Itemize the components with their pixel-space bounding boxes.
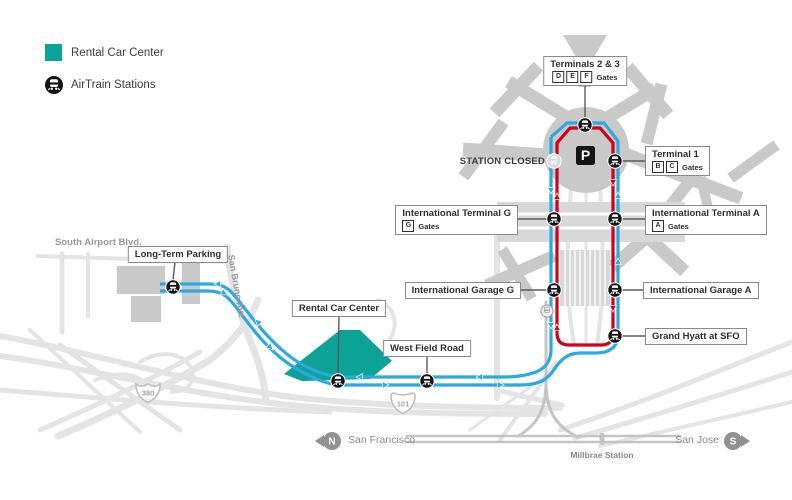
- label-international-garage-a: International Garage A: [643, 282, 759, 299]
- label-title: International Terminal A: [652, 208, 760, 219]
- label-title: International Garage A: [650, 285, 752, 296]
- gates-row: D E F Gates: [550, 71, 620, 83]
- station-marker-terminals-2-3: [578, 118, 592, 132]
- south-badge: S: [724, 432, 750, 450]
- gate-chip-c: C: [666, 161, 678, 173]
- label-terminals-2-3: Terminals 2 & 3 D E F Gates: [543, 56, 627, 86]
- label-title: Long-Term Parking: [135, 249, 221, 260]
- rental-car-swatch: [45, 44, 62, 61]
- svg-text:101: 101: [397, 400, 410, 409]
- label-title: Rental Car Center: [299, 303, 379, 314]
- label-rental-car-center: Rental Car Center: [292, 300, 386, 317]
- millbrae-station-dot: [600, 433, 605, 445]
- label-title: Terminals 2 & 3: [550, 59, 620, 70]
- label-title: International Terminal G: [402, 208, 511, 219]
- gates-word: Gates: [597, 73, 618, 82]
- terminal-buildings: [117, 35, 772, 322]
- label-grand-hyatt: Grand Hyatt at SFO: [645, 328, 747, 345]
- gates-word: Gates: [682, 163, 703, 172]
- label-international-terminal-a: International Terminal A A Gates: [645, 205, 767, 235]
- gates-row: A Gates: [652, 220, 760, 232]
- legend: Rental Car Center AirTrain Stations: [45, 44, 164, 109]
- station-marker-closed: [547, 154, 561, 168]
- station-marker-intl-terminal-a: [608, 212, 622, 226]
- svg-text:380: 380: [142, 389, 155, 398]
- station-marker-intl-terminal-g: [547, 212, 561, 226]
- terminal-funnel-building: [563, 35, 607, 57]
- millbrae-station-text: Millbrae Station: [555, 450, 649, 460]
- north-badge: N: [315, 432, 341, 450]
- svg-text:N: N: [328, 437, 335, 448]
- station-marker-closed-small: [541, 305, 553, 317]
- station-marker-terminal-1: [608, 154, 622, 168]
- station-marker-intl-garage-a: [608, 283, 622, 297]
- gates-row: G Gates: [402, 220, 511, 232]
- gates-row: B C Gates: [652, 161, 703, 173]
- airtrain-station-icon: [44, 75, 64, 95]
- legend-label: AirTrain Stations: [71, 79, 156, 91]
- gate-chip-b: B: [652, 161, 664, 173]
- label-terminal-1: Terminal 1 B C Gates: [645, 146, 710, 176]
- station-marker-intl-garage-g: [547, 283, 561, 297]
- san-jose-text: San Jose: [675, 434, 719, 446]
- legend-airtrain-stations: AirTrain Stations: [45, 75, 164, 95]
- label-title: International Garage G: [412, 285, 514, 296]
- parking-symbol: P: [576, 146, 595, 165]
- regional-rail-lines: [407, 302, 680, 445]
- label-long-term-parking: Long-Term Parking: [128, 246, 228, 263]
- gate-chip-d: D: [553, 71, 565, 83]
- gate-chip-a: A: [652, 220, 664, 232]
- gate-chip-f: F: [581, 71, 593, 83]
- station-marker-west-field-road: [420, 374, 434, 388]
- station-marker-long-term-parking: [166, 280, 180, 294]
- station-closed-text: STATION CLOSED: [455, 156, 545, 167]
- legend-label: Rental Car Center: [71, 47, 164, 59]
- long-term-parking-building: [117, 266, 165, 294]
- gates-word: Gates: [668, 222, 689, 231]
- label-title: Terminal 1: [652, 149, 703, 160]
- station-marker-rental-car-center: [331, 374, 345, 388]
- gates-word: Gates: [418, 222, 439, 231]
- gate-chip-e: E: [567, 71, 579, 83]
- label-international-garage-g: International Garage G: [405, 282, 521, 299]
- label-title: West Field Road: [390, 343, 464, 354]
- legend-rental-car-center: Rental Car Center: [45, 44, 164, 61]
- station-marker-grand-hyatt: [608, 329, 622, 343]
- airtrain-map: 380 101 N S Rental Car Center AirTrain S…: [0, 0, 792, 500]
- san-francisco-text: San Francisco: [348, 434, 415, 446]
- label-international-terminal-g: International Terminal G G Gates: [395, 205, 518, 235]
- label-title: Grand Hyatt at SFO: [652, 331, 740, 342]
- label-west-field-road: West Field Road: [383, 340, 471, 357]
- gate-chip-g: G: [402, 220, 414, 232]
- svg-text:S: S: [730, 437, 737, 448]
